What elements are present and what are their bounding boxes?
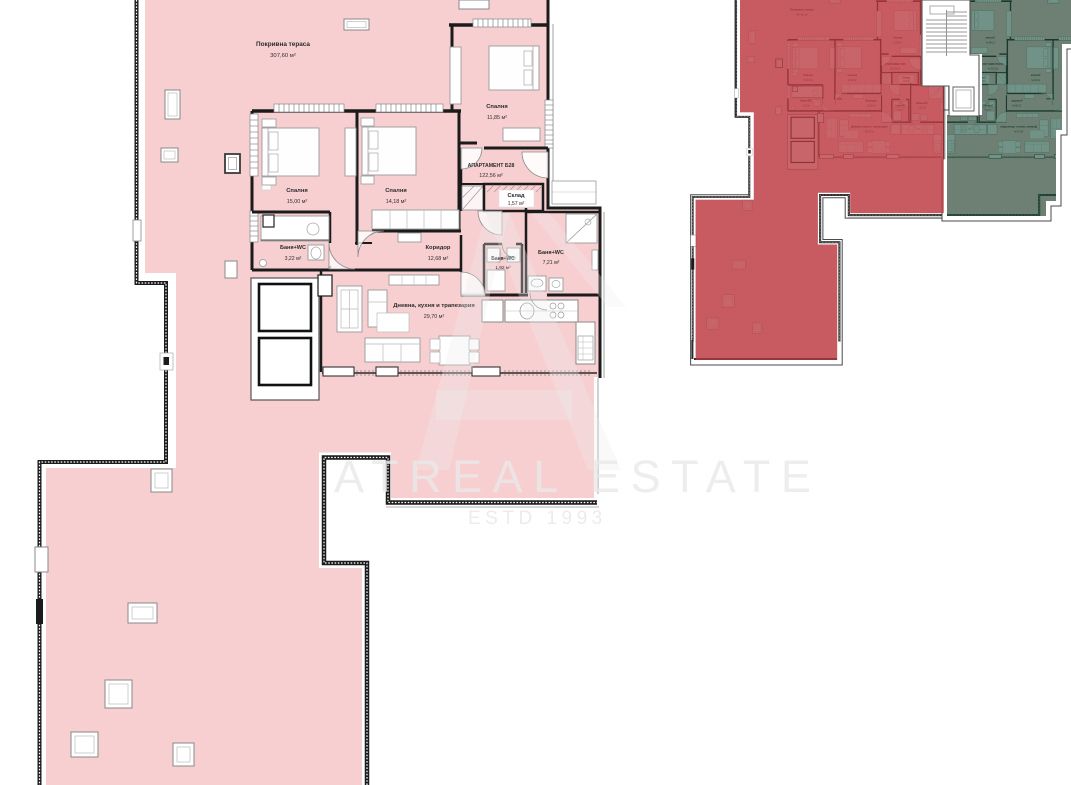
svg-text:29,70 м²: 29,70 м² (424, 314, 445, 320)
svg-text:Коридор: Коридор (426, 245, 451, 251)
svg-text:Спалня: Спалня (385, 188, 406, 194)
svg-text:307,60 м²: 307,60 м² (270, 53, 296, 59)
svg-text:12,68 м²: 12,68 м² (428, 256, 449, 262)
svg-text:1,57 м²: 1,57 м² (508, 201, 525, 207)
svg-text:Покривна тераса: Покривна тераса (256, 41, 310, 48)
svg-text:122,56 м²: 122,56 м² (479, 173, 503, 179)
svg-text:ESTD 1993: ESTD 1993 (468, 508, 607, 529)
svg-text:11,85 м²: 11,85 м² (487, 115, 507, 121)
svg-text:ATREAL ESTATE: ATREAL ESTATE (334, 451, 821, 502)
svg-text:7,21 м²: 7,21 м² (543, 260, 560, 266)
svg-text:Спалня: Спалня (486, 104, 507, 110)
svg-text:14,18 м²: 14,18 м² (386, 199, 407, 205)
svg-text:Спалня: Спалня (286, 188, 307, 194)
svg-text:Баня+WC: Баня+WC (538, 250, 564, 256)
svg-text:Баня+WC: Баня+WC (280, 245, 306, 251)
svg-text:АПАРТАМЕНТ Б28: АПАРТАМЕНТ Б28 (468, 163, 515, 169)
svg-text:3,22 м²: 3,22 м² (285, 256, 302, 262)
svg-text:Склад: Склад (507, 193, 525, 199)
svg-text:15,00 м²: 15,00 м² (287, 199, 308, 205)
